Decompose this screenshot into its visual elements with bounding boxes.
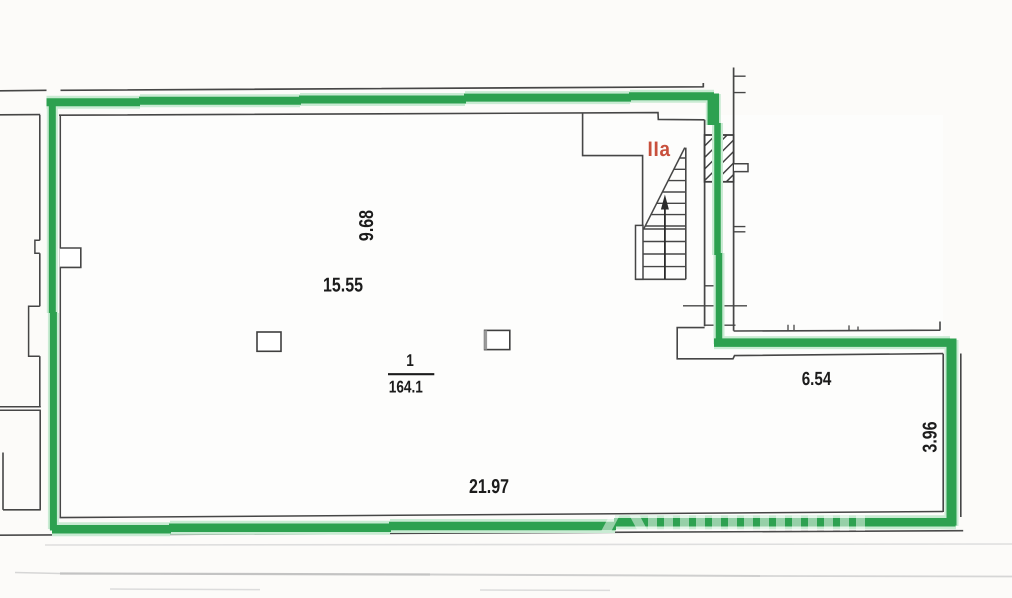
svg-text:IIa: IIa xyxy=(648,138,671,161)
svg-text:9.68: 9.68 xyxy=(356,210,378,241)
svg-text:164.1: 164.1 xyxy=(389,377,423,396)
svg-text:6.54: 6.54 xyxy=(802,369,832,390)
svg-text:3.96: 3.96 xyxy=(920,421,942,452)
svg-text:1: 1 xyxy=(406,351,414,370)
svg-text:15.55: 15.55 xyxy=(323,275,363,297)
svg-text:21.97: 21.97 xyxy=(469,476,509,498)
